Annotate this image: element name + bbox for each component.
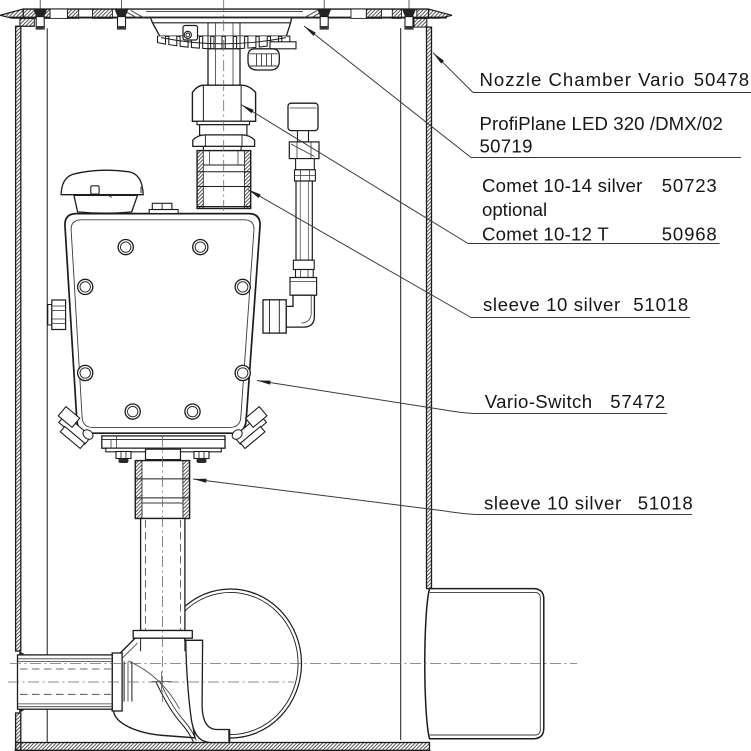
svg-text:50723: 50723 [662,175,718,196]
svg-text:Comet 10-14 silver: Comet 10-14 silver [482,175,643,196]
svg-text:ProfiPlane LED 320 /DMX/02: ProfiPlane LED 320 /DMX/02 [480,113,723,134]
svg-text:sleeve 10 silver: sleeve 10 silver [483,294,621,315]
svg-text:Vario-Switch: Vario-Switch [485,391,593,412]
svg-text:Nozzle Chamber Vario: Nozzle Chamber Vario [480,69,686,90]
svg-text:50719: 50719 [480,136,533,157]
svg-text:51018: 51018 [633,294,689,315]
svg-text:50968: 50968 [662,224,718,245]
svg-text:57472: 57472 [610,391,666,412]
svg-text:51018: 51018 [638,493,694,514]
svg-text:sleeve 10 silver: sleeve 10 silver [484,493,622,514]
svg-text:Comet 10-12 T: Comet 10-12 T [482,224,609,245]
svg-text:50478: 50478 [694,69,750,90]
svg-text:optional: optional [482,199,547,220]
